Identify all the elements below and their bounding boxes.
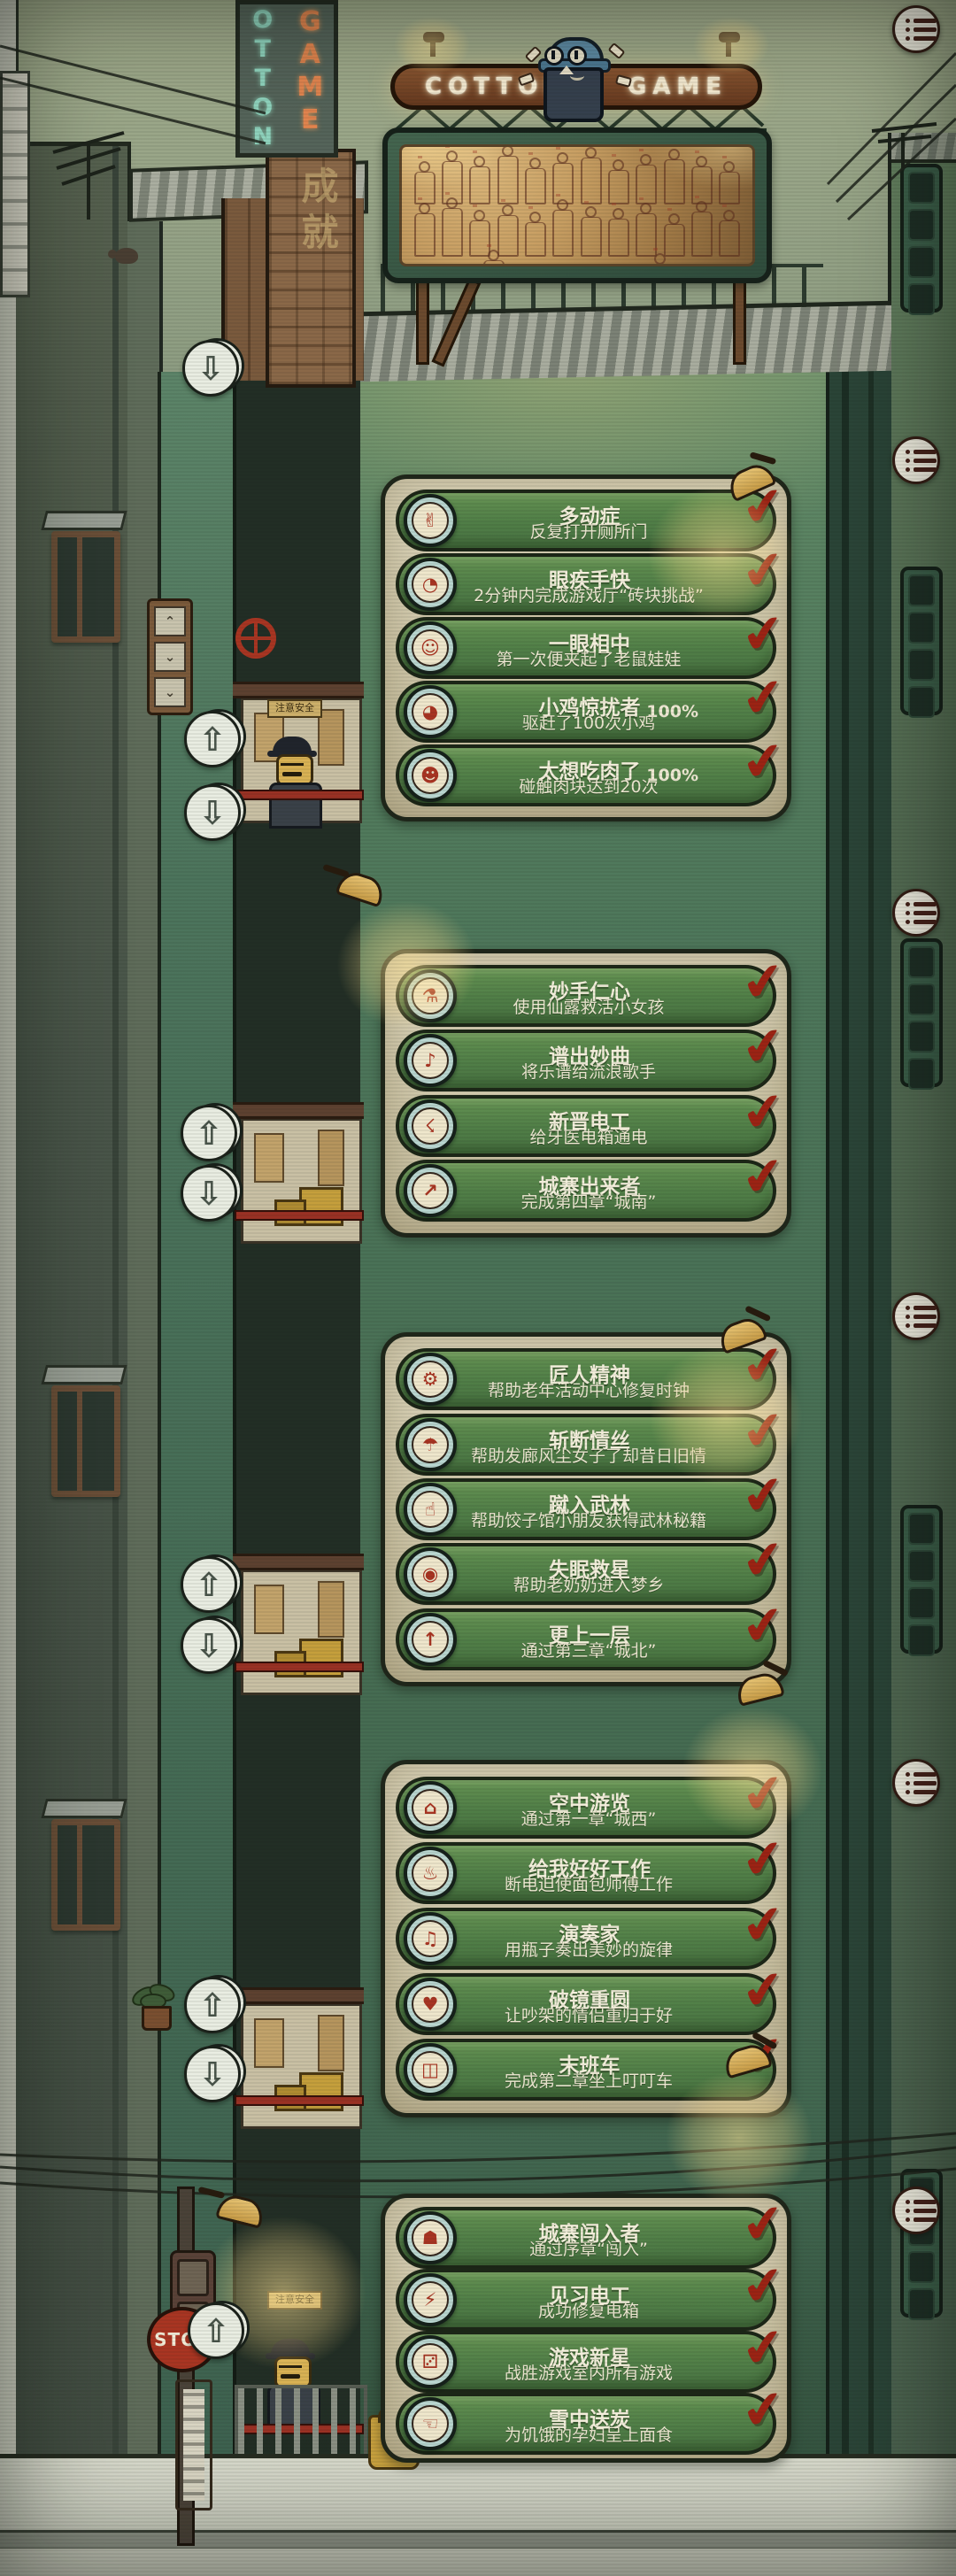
list-menu-icon bbox=[914, 2200, 937, 2204]
menu-button[interactable] bbox=[892, 436, 940, 484]
completed-checkmark-icon: ✔ bbox=[739, 2319, 789, 2376]
list-menu-icon bbox=[914, 450, 937, 454]
achievement-description: 完成第二章坐上叮叮车 bbox=[454, 2068, 723, 2092]
achievement-description: 帮助老奶奶进入梦乡 bbox=[454, 1572, 723, 1596]
giving-hand-icon: ☜ bbox=[412, 2405, 449, 2442]
list-menu-icon bbox=[914, 1306, 937, 1310]
chick-icon: ◕ bbox=[412, 693, 449, 730]
progress-percent: 100% bbox=[646, 766, 698, 785]
completed-checkmark-icon: ✔ bbox=[739, 669, 789, 726]
robot-eye bbox=[544, 46, 564, 66]
achievement-badge: ⚗ bbox=[404, 969, 457, 1022]
pill-icon: ◉ bbox=[412, 1555, 449, 1593]
menu-button[interactable] bbox=[892, 5, 940, 53]
gamepad-icon: ⚂ bbox=[412, 2343, 449, 2380]
achievement-badge: ♥ bbox=[404, 1978, 457, 2031]
up-arrow-icon: ⇧ bbox=[195, 1566, 222, 1604]
achievement-badge: ♨ bbox=[404, 1847, 457, 1900]
menu-button[interactable] bbox=[892, 889, 940, 937]
achievement-panel-5: ☗城寨闯入者通过序章“闯入”✔⚡见习电工成功修复电箱✔⚂游戏新星战胜游戏室内所有… bbox=[381, 2194, 791, 2463]
up-arrow-icon: ↑ bbox=[412, 1621, 449, 1658]
achievement-badge: ☺ bbox=[404, 621, 457, 675]
left-building bbox=[16, 142, 131, 2474]
achievement-badge: ↗ bbox=[404, 1164, 457, 1217]
achievement-badge: ☝ bbox=[404, 1483, 457, 1536]
achievement-row: ↑更上一层通过第三章“城北”✔ bbox=[396, 1608, 776, 1670]
achievement-badge: ↑ bbox=[404, 1613, 457, 1666]
right-building-roof bbox=[891, 133, 956, 163]
down-arrow-icon: ⇩ bbox=[197, 350, 224, 388]
drainpipe bbox=[112, 146, 119, 2474]
billboard-figure bbox=[469, 220, 490, 257]
achievement-description: 通过第三章“城北” bbox=[454, 1638, 723, 1662]
achievement-badge: ☜ bbox=[404, 2397, 457, 2450]
spotlight bbox=[423, 32, 444, 42]
neon-dash bbox=[607, 42, 625, 59]
achievement-description: 2分钟内完成游戏厅“砖块挑战” bbox=[454, 582, 723, 606]
menu-button[interactable] bbox=[892, 1292, 940, 1340]
red-railing bbox=[235, 790, 364, 800]
down-arrow-icon: ⇩ bbox=[195, 1627, 222, 1665]
achievement-row: ♨给我好好工作断电迫使面包师傅工作✔ bbox=[396, 1842, 776, 1904]
achievement-row: ☜雪中送炭为饥饿的孕妇呈上面食✔ bbox=[396, 2393, 776, 2455]
robot-mascot bbox=[538, 37, 605, 119]
list-menu-icon bbox=[914, 19, 937, 23]
cable-car-icon: ⌂ bbox=[412, 1789, 449, 1826]
billboard-figure bbox=[497, 215, 519, 257]
billboard-figure bbox=[581, 158, 602, 204]
bottle-music-icon: ♫ bbox=[412, 1920, 449, 1957]
achievement-row: ♥破镜重圆让吵架的情侣重归于好✔ bbox=[396, 1973, 776, 2035]
achievement-badge: ◕ bbox=[404, 685, 457, 738]
achievement-row: ⌂空中游览通过第一章“城西”✔ bbox=[396, 1777, 776, 1839]
vertical-sign-text-game: GAME bbox=[297, 6, 323, 137]
achievement-row: ⚡见习电工成功修复电箱✔ bbox=[396, 2269, 776, 2331]
billboard-art bbox=[399, 144, 755, 266]
achievement-row: ⚗妙手仁心使用仙露救活小女孩✔ bbox=[396, 965, 776, 1027]
leg-out-icon: ↗ bbox=[412, 1172, 449, 1209]
elevator-down-button[interactable]: ⇩ bbox=[184, 784, 241, 841]
bus-stop-sign bbox=[175, 2379, 212, 2510]
plant-pot bbox=[142, 2006, 172, 2031]
achievement-description: 成功修复电箱 bbox=[454, 2298, 723, 2322]
billboard-figure bbox=[691, 166, 713, 204]
achievement-row: ◫末班车完成第二章坐上叮叮车✔ bbox=[396, 2039, 776, 2101]
completed-checkmark-icon: ✔ bbox=[739, 1597, 789, 1654]
achievement-badge: ⌂ bbox=[404, 1781, 457, 1834]
billboard-figure bbox=[483, 260, 505, 266]
safety-plaque: 注意安全 bbox=[267, 2291, 322, 2310]
achievement-row: ◉失眠救星帮助老奶奶进入梦乡✔ bbox=[396, 1543, 776, 1605]
potted-plant bbox=[129, 1981, 179, 2031]
elevator-up-button[interactable]: ⇧ bbox=[188, 2302, 244, 2359]
robot-eye bbox=[567, 46, 587, 66]
billboard-figure bbox=[525, 222, 546, 257]
completed-checkmark-icon: ✔ bbox=[739, 953, 789, 1010]
up-arrow-icon: ⇧ bbox=[195, 1114, 222, 1153]
up-arrow-icon: ⇧ bbox=[198, 721, 226, 759]
achievement-badge: ♫ bbox=[404, 1912, 457, 1965]
billboard-figure bbox=[414, 213, 436, 257]
achievement-description: 帮助饺子馆小朋友获得武林秘籍 bbox=[454, 1508, 723, 1531]
elevator-up-button[interactable]: ⇧ bbox=[181, 1556, 237, 1613]
achievement-badge: ♪ bbox=[404, 1034, 457, 1087]
achievement-badge: ☗ bbox=[404, 2211, 457, 2264]
billboard-figure bbox=[719, 172, 740, 204]
achievement-badge: ☂ bbox=[404, 1418, 457, 1471]
completed-checkmark-icon: ✔ bbox=[739, 1531, 789, 1588]
tram-icon: ◫ bbox=[412, 2051, 449, 2088]
achievement-description: 战胜游戏室内所有游戏 bbox=[454, 2360, 723, 2384]
street bbox=[0, 2549, 956, 2576]
achievement-row: ☗城寨闯入者通过序章“闯入”✔ bbox=[396, 2207, 776, 2269]
billboard-figures bbox=[411, 154, 744, 257]
achievement-description: 帮助发廊风尘女子了却昔日旧情 bbox=[454, 1443, 723, 1467]
billboard-figure bbox=[664, 224, 685, 257]
glove-hand-icon: ✌ bbox=[412, 502, 449, 539]
achievement-badge: ◉ bbox=[404, 1547, 457, 1600]
elevator-down-button[interactable]: ⇩ bbox=[182, 340, 239, 397]
achievement-description: 为饥饿的孕妇呈上面食 bbox=[454, 2422, 723, 2446]
palm-icon: ☝ bbox=[412, 1491, 449, 1528]
achievement-row: ⚂游戏新星战胜游戏室内所有游戏✔ bbox=[396, 2331, 776, 2393]
meat-face-icon: ☻ bbox=[412, 757, 449, 794]
achievement-badge: ◔ bbox=[404, 558, 457, 611]
achievement-panel-3: ⚙匠人精神帮助老年活动中心修复时钟✔☂斩断情丝帮助发廊风尘女子了却昔日旧情✔☝蹴… bbox=[381, 1332, 791, 1686]
achievement-row: ♫演奏家用瓶子奏出美妙的旋律✔ bbox=[396, 1908, 776, 1970]
robot-mouth bbox=[570, 71, 584, 81]
achievement-description: 给牙医电箱通电 bbox=[454, 1124, 723, 1148]
billboard-leg bbox=[733, 280, 746, 365]
completed-checkmark-icon: ✔ bbox=[739, 2257, 789, 2314]
valve-wheel bbox=[235, 618, 276, 659]
left-wall-signboard bbox=[0, 71, 30, 297]
menu-button[interactable] bbox=[892, 2187, 940, 2234]
achievement-description: 用瓶子奏出美妙的旋律 bbox=[454, 1937, 723, 1961]
scene: 成就 OTTON GAME COTTON GAME ⌃⌄⌄ bbox=[0, 0, 956, 2576]
neon-text-game: GAME bbox=[628, 73, 728, 100]
achievement-badge: ☻ bbox=[404, 749, 457, 802]
up-arrow-icon: ⇧ bbox=[202, 2312, 229, 2350]
completed-checkmark-icon: ✔ bbox=[739, 542, 789, 598]
achievement-row: ☇新晋电工给牙医电箱通电✔ bbox=[396, 1095, 776, 1157]
down-arrow-icon: ⇩ bbox=[198, 2055, 226, 2094]
elevator-up-button[interactable]: ⇧ bbox=[181, 1105, 237, 1161]
left-building-window bbox=[51, 1819, 120, 1931]
lightning-icon: ⚡ bbox=[412, 2281, 449, 2318]
red-railing bbox=[235, 1662, 364, 1672]
achievement-row: ♪谱出妙曲将乐谱给流浪歌手✔ bbox=[396, 1030, 776, 1091]
completed-checkmark-icon: ✔ bbox=[739, 1896, 789, 1953]
achievement-badge: ⚂ bbox=[404, 2335, 457, 2388]
completed-checkmark-icon: ✔ bbox=[739, 1402, 789, 1459]
progress-percent: 100% bbox=[646, 702, 698, 721]
shaft-beam bbox=[233, 1987, 364, 2004]
shaft-beam bbox=[233, 1554, 364, 1570]
billboard-figure bbox=[552, 163, 574, 204]
achievement-row: ☝蹴入武林帮助饺子馆小朋友获得武林秘籍✔ bbox=[396, 1478, 776, 1540]
achievement-description: 让吵架的情侣重归于好 bbox=[454, 2002, 723, 2026]
list-menu-icon bbox=[914, 902, 937, 906]
elevator-call-panel[interactable]: ⌃⌄⌄ bbox=[147, 598, 193, 715]
menu-button[interactable] bbox=[892, 1759, 940, 1807]
completed-checkmark-icon: ✔ bbox=[739, 1083, 789, 1139]
safety-plaque: 注意安全 bbox=[267, 699, 322, 718]
bandaged-heart-icon: ♥ bbox=[412, 1986, 449, 2023]
right-building-window bbox=[900, 1505, 943, 1654]
completed-checkmark-icon: ✔ bbox=[739, 1467, 789, 1523]
achievement-badge: ☇ bbox=[404, 1099, 457, 1153]
achievement-row: ☺一眼相中第一次便夹起了老鼠娃娃✔ bbox=[396, 617, 776, 679]
billboard-figure bbox=[442, 208, 463, 257]
baker-icon: ♨ bbox=[412, 1855, 449, 1892]
billboard-figure bbox=[719, 220, 740, 257]
elevator-up-button[interactable]: ⇧ bbox=[184, 1977, 241, 2033]
billboard-figure bbox=[525, 168, 546, 204]
completed-checkmark-icon: ✔ bbox=[739, 733, 789, 790]
billboard-figure bbox=[581, 217, 602, 257]
achievement-description: 通过序章“闯入” bbox=[454, 2236, 723, 2260]
achievement-row: ⚙匠人精神帮助老年活动中心修复时钟✔ bbox=[396, 1348, 776, 1410]
left-building-window bbox=[51, 1385, 120, 1497]
achievement-row: ◕小鸡惊扰者驱赶了100次小鸡100%✔ bbox=[396, 681, 776, 743]
achievement-badge: ◫ bbox=[404, 2043, 457, 2096]
achievement-description: 第一次便夹起了老鼠娃娃 bbox=[454, 646, 723, 670]
billboard-figure bbox=[469, 166, 490, 204]
shaft-beam bbox=[233, 682, 364, 698]
achievement-badge: ⚙ bbox=[404, 1353, 457, 1406]
completed-checkmark-icon: ✔ bbox=[739, 1148, 789, 1205]
curb bbox=[0, 2530, 956, 2550]
billboard-leg bbox=[416, 280, 429, 365]
achievement-row: ◔眼疾手快2分钟内完成游戏厅“砖块挑战”✔ bbox=[396, 553, 776, 615]
umbrella-icon: ☂ bbox=[412, 1426, 449, 1463]
completed-checkmark-icon: ✔ bbox=[739, 1831, 789, 1887]
music-score-icon: ♪ bbox=[412, 1042, 449, 1079]
achievement-row: ↗城寨出来者完成第四章“城南”✔ bbox=[396, 1160, 776, 1222]
elevator-up-button[interactable]: ⇧ bbox=[184, 711, 241, 767]
right-building-window bbox=[900, 938, 943, 1087]
completed-checkmark-icon: ✔ bbox=[739, 605, 789, 662]
tower-right-face bbox=[826, 370, 891, 2461]
achievement-row: ✌多动症反复打开厕所门✔ bbox=[396, 490, 776, 551]
down-arrow-icon: ⇩ bbox=[195, 1175, 222, 1213]
billboard-figure bbox=[552, 210, 574, 257]
achievement-description: 将乐谱给流浪歌手 bbox=[454, 1059, 723, 1083]
brick-chimney: 成就 bbox=[266, 149, 356, 388]
red-railing bbox=[235, 2095, 364, 2106]
list-menu-icon bbox=[914, 1772, 937, 1777]
character-billboard bbox=[382, 127, 772, 283]
billboard-figure bbox=[650, 264, 671, 266]
completed-checkmark-icon: ✔ bbox=[739, 2195, 789, 2252]
left-building-window bbox=[51, 531, 120, 643]
billboard-figure bbox=[497, 156, 519, 204]
achievement-row: ☂斩断情丝帮助发廊风尘女子了却昔日旧情✔ bbox=[396, 1414, 776, 1476]
elevator-down-button[interactable]: ⇩ bbox=[184, 2046, 241, 2102]
right-building-window bbox=[900, 164, 943, 312]
achievement-description: 帮助老年活动中心修复时钟 bbox=[454, 1377, 723, 1401]
chimney-painted-text: 成就 bbox=[290, 166, 344, 258]
achievement-badge: ✌ bbox=[404, 494, 457, 547]
achievement-panel-1: ✌多动症反复打开厕所门✔◔眼疾手快2分钟内完成游戏厅“砖块挑战”✔☺一眼相中第一… bbox=[381, 474, 791, 821]
down-arrow-icon: ⇩ bbox=[198, 794, 226, 832]
stopwatch-icon: ◔ bbox=[412, 566, 449, 603]
vertical-sign-text-cotton: OTTON bbox=[251, 6, 274, 152]
completed-checkmark-icon: ✔ bbox=[739, 2381, 789, 2438]
red-railing bbox=[235, 1210, 364, 1221]
sidewalk bbox=[0, 2454, 956, 2536]
billboard-figure bbox=[691, 212, 713, 257]
billboard-figure bbox=[608, 170, 629, 204]
achievement-description: 完成第四章“城南” bbox=[454, 1189, 723, 1213]
bird bbox=[115, 248, 138, 264]
elevator-down-button[interactable]: ⇩ bbox=[181, 1165, 237, 1222]
elixir-bottle-icon: ⚗ bbox=[412, 977, 449, 1014]
achievement-description: 使用仙露救活小女孩 bbox=[454, 994, 723, 1018]
achievement-description: 反复打开厕所门 bbox=[454, 519, 723, 543]
achievement-row: ☻太想吃肉了碰触肉块达到20次100%✔ bbox=[396, 744, 776, 806]
achievement-description: 断电迫使面包师傅工作 bbox=[454, 1871, 723, 1895]
achievement-panel-2: ⚗妙手仁心使用仙露救活小女孩✔♪谱出妙曲将乐谱给流浪歌手✔☇新晋电工给牙医电箱通… bbox=[381, 949, 791, 1238]
billboard-figure bbox=[664, 159, 685, 204]
gear-icon: ⚙ bbox=[412, 1361, 449, 1398]
completed-checkmark-icon: ✔ bbox=[739, 1765, 789, 1822]
right-building-window bbox=[900, 567, 943, 715]
achievement-badge: ⚡ bbox=[404, 2273, 457, 2326]
spotlight bbox=[719, 32, 740, 42]
achievement-description: 通过第一章“城西” bbox=[454, 1806, 723, 1830]
mouse-doll-icon: ☺ bbox=[412, 629, 449, 667]
vertical-neon-sign: OTTON GAME bbox=[235, 0, 338, 158]
shaft-beam bbox=[233, 1102, 364, 1119]
helmet-bolt-icon: ☇ bbox=[412, 1107, 449, 1145]
up-arrow-icon: ⇧ bbox=[198, 1986, 226, 2025]
completed-checkmark-icon: ✔ bbox=[739, 1962, 789, 2018]
completed-checkmark-icon: ✔ bbox=[739, 1018, 789, 1075]
boot-icon: ☗ bbox=[412, 2219, 449, 2256]
billboard-figure bbox=[608, 219, 629, 257]
elevator-down-button[interactable]: ⇩ bbox=[181, 1617, 237, 1674]
